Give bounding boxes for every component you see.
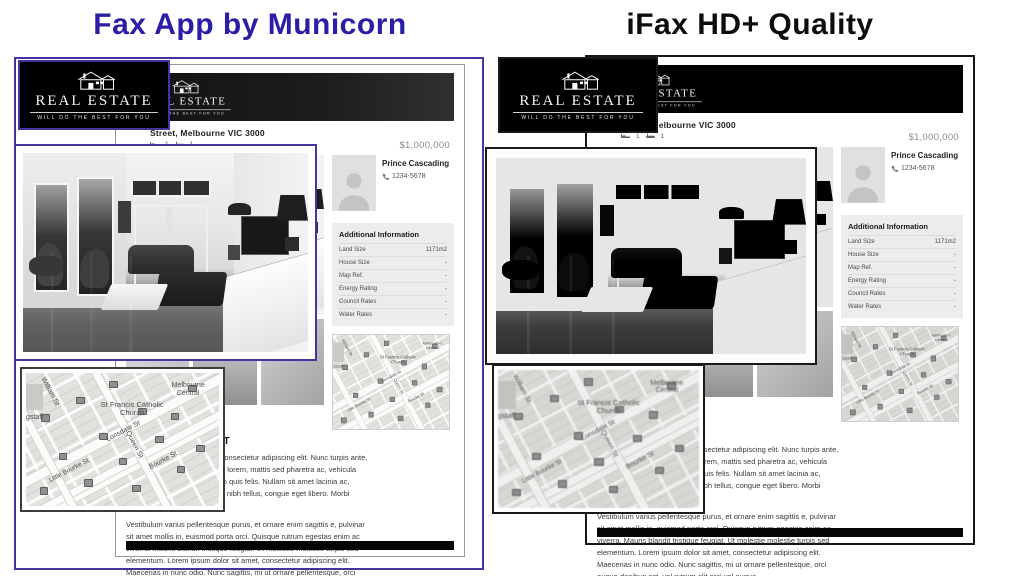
logo-zoom-callout-right: REAL ESTATE WILL DO THE BEST FOR YOU [498,57,658,133]
right-comparison-title: iFax HD+ Quality [530,8,970,42]
logo-wordmark: REAL ESTATE [503,93,653,110]
bath-count: 1 [661,133,665,140]
map-label-melbourne-central: Melbourne Central [926,334,957,343]
map-label-flagstaff: gstaff [842,357,852,361]
logo-wordmark: REAL ESTATE [20,93,168,110]
location-map-thumbnail: Melbourne Central St Francis Catholic Ch… [332,334,450,430]
doc-footer-bar [126,541,454,550]
left-comparison-title: Fax App by Municorn [20,8,480,42]
info-row: House Size- [848,248,956,261]
map-label-melbourne-central: Melbourne Central [641,380,693,395]
phone-icon [382,173,389,180]
house-logo-icon [168,79,200,95]
listing-address: Street, Melbourne VIC 3000 [126,128,454,138]
fax-quality-comparison: Fax App by Municorn iFax HD+ Quality REA… [0,0,1024,576]
logo-divider [513,112,643,113]
tv-in-photo [242,217,288,255]
additional-information-title: Additional Information [339,230,447,239]
map-park-block [498,381,516,409]
info-row: Water Rates- [339,308,447,321]
logo-tagline: WILL DO THE BEST FOR YOU [20,115,168,121]
doc-header-banner: REAL ESTATE WILL DO THE BEST FOR YOU [126,73,454,121]
map-label-flagstaff: gstaff [498,413,515,421]
living-room-photo [496,158,806,354]
house-logo-icon [556,70,600,92]
map-zoom-callout-left: Melbourne Central St Francis Catholic Ch… [20,367,225,512]
info-row: Energy Rating- [339,282,447,295]
house-logo-icon [72,70,116,92]
info-row: Map Ref.- [848,261,956,274]
agent-phone: 1234-5678 [382,173,449,180]
photo-zoom-callout-right [485,147,817,365]
agent-avatar [841,147,885,203]
bed-count: 1 [636,133,640,140]
map-label-church: St Francis Catholic Church [572,399,644,416]
additional-information-box: Additional Information Land Size1171m2 H… [841,215,963,318]
map-label-melbourne-central: Melbourne Central [163,382,213,397]
listing-price: $1,000,000 [908,132,959,143]
additional-information-title: Additional Information [848,222,956,231]
map-label-church: St Francis Catholic Church [886,347,928,356]
agent-name: Prince Cascading [891,151,958,160]
map-label-church: St Francis Catholic Church [377,355,419,364]
photo-zoom-callout-left [14,144,317,361]
map-label-flagstaff: gstaff [26,414,43,422]
agent-name: Prince Cascading [382,159,449,168]
tv-in-photo [735,221,785,258]
agent-avatar [332,155,376,211]
melbourne-street-map: Melbourne Central St Francis Catholic Ch… [333,335,450,430]
info-row: Council Rates- [339,295,447,308]
real-estate-logo: REAL ESTATE WILL DO THE BEST FOR YOU [20,70,168,121]
info-row: Map Ref.- [339,269,447,282]
map-zoom-callout-right: Melbourne Central St Francis Catholic Ch… [492,364,705,514]
listing-price: $1,000,000 [399,140,450,151]
logo-zoom-callout-left: REAL ESTATE WILL DO THE BEST FOR YOU [18,60,170,130]
info-row: Energy Rating- [848,274,956,287]
bath-icon [646,133,655,140]
info-row: House Size- [339,256,447,269]
logo-divider [30,112,158,113]
info-row: Land Size1171m2 [339,243,447,256]
agent-card: Prince Cascading 1234-5678 [841,147,963,203]
doc-footer-bar [597,528,963,537]
melbourne-street-map: Melbourne Central St Francis Catholic Ch… [26,373,219,506]
info-row: Council Rates- [848,287,956,300]
agent-card: Prince Cascading 1234-5678 [332,155,454,211]
additional-information-box: Additional Information Land Size1171m2 H… [332,223,454,326]
map-park-block [26,384,43,411]
melbourne-street-map: Melbourne Central St Francis Catholic Ch… [842,327,959,422]
map-label-church: St Francis Catholic Church [97,401,166,418]
info-row: Land Size1171m2 [848,235,956,248]
bed-icon [621,133,630,140]
info-row: Water Rates- [848,300,956,313]
agent-phone: 1234-5678 [891,165,958,172]
melbourne-street-map: Melbourne Central St Francis Catholic Ch… [498,370,699,508]
map-label-flagstaff: gstaff [333,365,343,369]
logo-tagline: WILL DO THE BEST FOR YOU [503,115,653,121]
location-map-thumbnail: Melbourne Central St Francis Catholic Ch… [841,326,959,422]
description-paragraph: Vestibulum varius pellentesque purus, et… [597,511,843,576]
map-label-melbourne-central: Melbourne Central [417,342,448,351]
phone-icon [891,165,898,172]
real-estate-logo: REAL ESTATE WILL DO THE BEST FOR YOU [503,70,653,121]
living-room-photo [23,153,308,352]
